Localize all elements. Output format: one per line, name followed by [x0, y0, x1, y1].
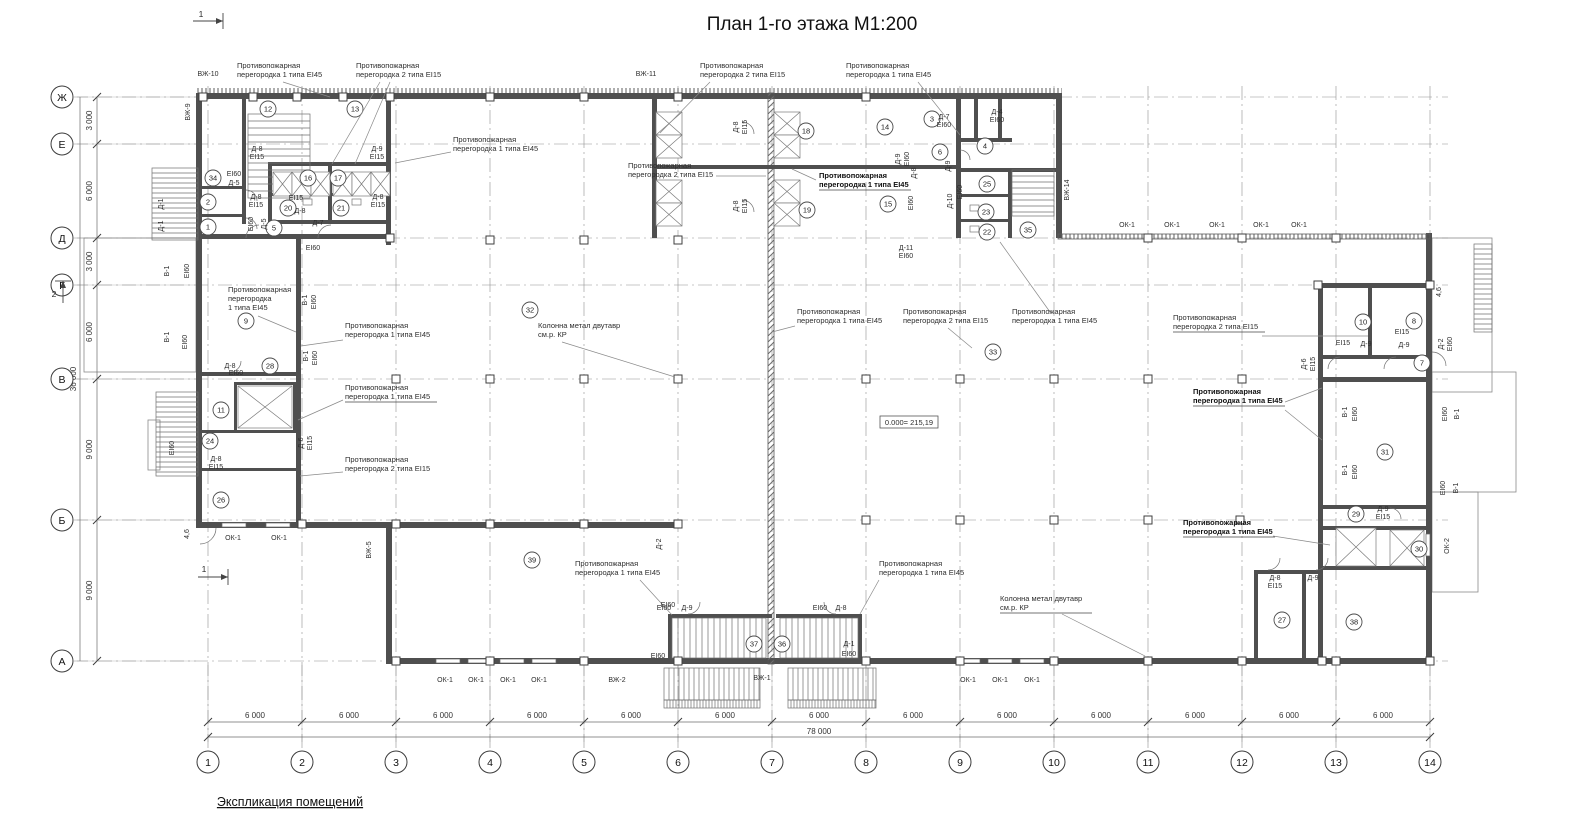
dim-total-text: 78 000: [807, 727, 832, 736]
annotation-text: Противопожарнаяперегородка 1 типа EI45: [1183, 518, 1273, 536]
column-marker: [862, 93, 870, 101]
tag-label: ОК-1: [437, 677, 453, 684]
dim-text: 6 000: [809, 711, 830, 720]
column-marker: [392, 520, 400, 528]
room-number: 20: [284, 204, 292, 213]
tag-label: ОК-1: [1119, 222, 1135, 229]
annotation: Противопожарнаяперегородка 1 типа EI45: [772, 307, 882, 332]
annotation-text: Противопожарнаяперегородка 1 типа EI45: [345, 321, 430, 339]
tag-label: 4,6: [184, 529, 191, 539]
annotation-text: Колонна метал двутаврсм.р. КР: [1000, 594, 1082, 612]
annotation: Противопожарнаяперегородка 2 типа EI15: [300, 455, 430, 476]
room-number: 1: [206, 223, 210, 232]
tag-label: Д-8: [1270, 575, 1281, 582]
axis-label: 12: [1236, 757, 1248, 769]
annotation-text: Противопожарнаяперегородка 2 типа EI15: [1173, 313, 1258, 331]
stair-flight: [788, 700, 876, 708]
tag-label: ОК-1: [1253, 222, 1269, 229]
tag-label: EI60: [182, 335, 189, 350]
column-marker: [956, 375, 964, 383]
tag-label: В-1: [303, 350, 310, 361]
dim-text: 9 000: [85, 439, 94, 460]
tag-label: EI15: [250, 154, 265, 161]
column-marker: [674, 93, 682, 101]
axis-label: В: [58, 374, 65, 386]
annotation: Колонна метал двутаврсм.р. КР: [1000, 594, 1145, 656]
tag-label: Д-8: [733, 200, 740, 211]
tag-label: EI60: [937, 122, 952, 129]
annotation-text: Противопожарнаяперегородка 1 типа EI45: [846, 61, 931, 79]
axis-label: Ж: [57, 92, 67, 104]
annotation-leader: [562, 342, 675, 377]
annotation-leader: [1062, 614, 1145, 656]
stair36-wall: [776, 614, 862, 618]
wc-fixture: [303, 199, 312, 205]
room-number: 3: [930, 115, 934, 124]
dim-text: 6 000: [903, 711, 924, 720]
column-marker: [1238, 657, 1246, 665]
room-number: 36: [778, 640, 786, 649]
room-number: 15: [884, 200, 892, 209]
tag-label: ОК-1: [531, 677, 547, 684]
room-number: 9: [244, 317, 248, 326]
tag-label: Д-8: [733, 121, 740, 132]
annotation: Противопожарнаяперегородка 1 типа EI45: [792, 169, 911, 190]
lift-wall: [234, 382, 296, 385]
annotation-text: Противопожарнаяперегородка 2 типа EI15: [903, 307, 988, 325]
axis-label: Е: [58, 139, 65, 151]
room-number: 19: [803, 206, 811, 215]
annotation-text: Противопожарнаяперегородка1 типа EI45: [228, 285, 291, 312]
column-marker: [580, 375, 588, 383]
tag-label: В-1: [1454, 408, 1461, 419]
dim-text: 6 000: [85, 180, 94, 201]
tag-label: ОК-1: [271, 535, 287, 542]
tag-label: EI60: [184, 264, 191, 279]
tag-label: Д-1: [158, 220, 165, 231]
dim-text: 6 000: [433, 711, 454, 720]
annotation-leader: [258, 316, 296, 332]
tag-label: Д-11: [899, 245, 913, 252]
blk-wall: [960, 194, 1012, 197]
rb-wall-v: [1318, 377, 1432, 382]
tag-label: ВЖ-1: [753, 675, 770, 682]
tag-label: Д-9: [682, 605, 693, 612]
column-marker: [486, 236, 494, 244]
left-rooms-wall: [196, 430, 301, 433]
axis-label: 7: [769, 757, 775, 769]
column-marker: [674, 375, 682, 383]
stair36-wall: [858, 614, 862, 662]
elevation-marker: 0.000= 215,19: [880, 416, 938, 428]
tag-label: Д-8: [251, 194, 262, 201]
column-marker: [486, 520, 494, 528]
dim-text: 6 000: [715, 711, 736, 720]
column-marker: [1332, 234, 1340, 242]
room-number: 18: [802, 127, 810, 136]
tag-label: Д-8: [836, 605, 847, 612]
stair-flight: [664, 668, 760, 700]
tag-label: В-1: [1342, 406, 1349, 417]
lift2-wall: [1322, 566, 1432, 570]
left-rooms-wall: [196, 372, 301, 376]
stair34-wall: [242, 93, 246, 224]
shaft-box: [238, 386, 292, 428]
column-marker: [339, 93, 347, 101]
column-marker: [674, 657, 682, 665]
dim-text: 3 000: [85, 110, 94, 131]
tag-label: В-1: [1453, 482, 1460, 493]
tag-label: В-1: [164, 331, 171, 342]
stair37-wall: [668, 614, 772, 618]
column-marker: [1332, 657, 1340, 665]
axis-label: 3: [393, 757, 399, 769]
annotation: Противопожарнаяперегородка 1 типа EI45: [301, 321, 430, 346]
door-arc: [1268, 558, 1280, 570]
annotation-leader: [772, 326, 795, 332]
annotation: Противопожарнаяперегородка 1 типа EI45: [395, 135, 538, 163]
axis-label: Д: [58, 233, 65, 245]
tag-label: ОК-1: [992, 677, 1008, 684]
room-number: 14: [881, 123, 889, 132]
window-ok2: [1426, 534, 1430, 556]
tag-label: ОК-1: [1209, 222, 1225, 229]
column-marker: [580, 657, 588, 665]
axis-bubbles-layer: 1234567891011121314ЖЕДГВБА: [51, 86, 1441, 773]
tag-label: ОК-1: [960, 677, 976, 684]
dim-text: 6 000: [85, 321, 94, 342]
room-number: 5: [272, 224, 276, 233]
window-ok1: [532, 659, 556, 663]
tag-label: Д-9: [1399, 342, 1410, 349]
annotation-text: Противопожарнаяперегородка 2 типа EI15: [356, 61, 441, 79]
tag-label: Д-5: [261, 218, 268, 229]
stair37-wall: [668, 614, 672, 662]
stair-flight: [664, 700, 760, 708]
annotation: Противопожарнаяперегородка 2 типа EI15: [628, 161, 766, 179]
column-marker: [386, 93, 394, 101]
tag-label: ВЖ-2: [608, 677, 625, 684]
axis-label: 6: [675, 757, 681, 769]
annotation: Колонна метал двутаврсм.р. КР: [538, 321, 675, 377]
annotation: Противопожарнаяперегородка1 типа EI45: [228, 285, 296, 332]
column-marker: [486, 375, 494, 383]
room-number: 7: [1420, 359, 1424, 368]
shaft-box: [656, 112, 682, 158]
tag-label: Д-9: [1308, 575, 1319, 582]
window-ok1: [266, 523, 290, 527]
tag-label: ВЖ-14: [1064, 179, 1071, 200]
section-marker: 1: [193, 9, 223, 29]
wc-wall: [268, 162, 272, 224]
tag-label: ОК-1: [1164, 222, 1180, 229]
dim-text: 6 000: [1185, 711, 1206, 720]
tag-label: В-1: [164, 265, 171, 276]
window-ok1: [436, 659, 460, 663]
annotation-text: Противопожарнаяперегородка 2 типа EI15: [700, 61, 785, 79]
tag-label: ОК-1: [1291, 222, 1307, 229]
column-marker: [1144, 657, 1152, 665]
tag-label: EI15: [1310, 357, 1317, 372]
rb-wall: [1318, 355, 1432, 359]
room-number: 16: [304, 174, 312, 183]
tag-label: Д-9: [945, 160, 952, 171]
tag-label: EI60: [813, 605, 828, 612]
room-number: 4: [983, 142, 987, 151]
tag-label: Д-4: [992, 109, 1003, 116]
annotation-leader: [792, 169, 816, 180]
column-marker: [956, 516, 964, 524]
room-number: 6: [938, 148, 942, 157]
column-marker: [1144, 375, 1152, 383]
blk-wall: [1008, 168, 1012, 238]
annotation: Противопожарнаяперегородка 2 типа EI15: [903, 307, 988, 348]
axis-label: 13: [1330, 757, 1342, 769]
fixtures-layer: [303, 199, 979, 232]
column-marker: [298, 520, 306, 528]
tag-label: EI60: [651, 653, 666, 660]
tag-label: 4,6: [1436, 287, 1443, 297]
annotation-text: Противопожарнаяперегородка 1 типа EI45: [819, 171, 909, 189]
tag-label: Д-9: [1378, 506, 1389, 513]
annotation-text: Противопожарнаяперегородка 2 типа EI15: [628, 161, 713, 179]
central-bearing-wall: [768, 93, 774, 664]
rb-wall-g: [1318, 283, 1432, 288]
tag-label: EI15: [370, 154, 385, 161]
annotation-leader: [300, 472, 343, 476]
column-marker: [1314, 281, 1322, 289]
annotation-leader: [1000, 242, 1050, 312]
tag-label: EI15: [307, 436, 314, 451]
stair-flight: [156, 392, 198, 476]
room-number: 25: [983, 180, 991, 189]
tag-label: EI60: [842, 651, 857, 658]
tag-label: EI60: [227, 171, 242, 178]
door-arc: [960, 150, 970, 160]
room-number: 33: [989, 348, 997, 357]
room-number: 24: [206, 437, 214, 446]
room-number: 27: [1278, 616, 1286, 625]
axis-label: 10: [1048, 757, 1060, 769]
wall-right: [1426, 233, 1432, 664]
window-ok1: [1020, 659, 1044, 663]
windows-layer: [222, 523, 1430, 663]
tag-label: EI60: [661, 602, 676, 609]
column-marker: [1050, 657, 1058, 665]
tag-label: ОК-2: [1444, 538, 1451, 554]
room27-wall: [1302, 570, 1306, 662]
rb-wall-west: [1318, 283, 1323, 664]
annotation: Противопожарнаяперегородка 2 типа EI15: [1173, 313, 1368, 336]
column-marker: [392, 375, 400, 383]
tag-label: Д-8: [295, 208, 306, 215]
shaft-box: [656, 180, 682, 226]
window-ok1: [988, 659, 1012, 663]
shaft-box: [774, 180, 800, 226]
shaft-box: [1336, 528, 1376, 566]
wc-fixture: [970, 226, 979, 232]
tag-label: EI60: [311, 295, 318, 310]
room-number: 31: [1381, 448, 1389, 457]
column-marker: [199, 93, 207, 101]
column-marker: [1144, 516, 1152, 524]
column-marker: [386, 234, 394, 242]
tag-label: ОК-1: [500, 677, 516, 684]
tag-label: Д-1: [844, 641, 855, 648]
tag-label: В-1: [1342, 464, 1349, 475]
tag-label: Д-2: [656, 538, 663, 549]
legend-heading: Экспликация помещений: [217, 795, 363, 809]
tag-label: EI60: [229, 370, 244, 377]
tag-label: Д-8: [911, 167, 918, 178]
room-number: 26: [217, 496, 225, 505]
tag-label: EI15: [289, 195, 304, 202]
dim-text: 6 000: [527, 711, 548, 720]
annotation-leader: [301, 340, 343, 346]
tag-label: Д-6: [298, 437, 305, 448]
column-marker: [956, 657, 964, 665]
tag-label: EI15: [249, 202, 264, 209]
left-rooms-wall: [296, 234, 301, 524]
tag-label: EI15: [371, 202, 386, 209]
tag-label: Д-6: [1301, 358, 1308, 369]
tag-label: ВЖ-11: [636, 71, 657, 78]
axis-label: 5: [581, 757, 587, 769]
column-marker: [249, 93, 257, 101]
axis-label: 14: [1424, 757, 1436, 769]
tag-label: Д-10: [947, 193, 954, 208]
tag-label: EI60: [904, 152, 911, 167]
dim-text: 3 000: [85, 251, 94, 272]
room27-wall: [1254, 570, 1258, 662]
tag-label: Д-8: [252, 146, 263, 153]
room-number: 28: [266, 362, 274, 371]
tag-label: EI60: [169, 441, 176, 456]
annotation-leader: [1285, 410, 1322, 440]
room-number: 23: [982, 208, 990, 217]
right-platform: [1432, 238, 1492, 392]
annotation-text: Противопожарнаяперегородка 1 типа EI45: [879, 559, 964, 577]
door-arc: [1390, 508, 1401, 519]
wall-vzh5: [386, 522, 392, 664]
tag-label: Д-1: [158, 198, 165, 209]
tag-label: Д-7: [313, 220, 324, 227]
column-marker: [580, 520, 588, 528]
tag-label: EI15: [1268, 583, 1283, 590]
corridor-wall-d: [196, 234, 392, 239]
tag-label: Д-8: [225, 363, 236, 370]
tag-label: Д-8: [211, 456, 222, 463]
dim-text: 6 000: [1279, 711, 1300, 720]
tag-label: EI15: [209, 464, 224, 471]
tag-label: ОК-1: [1024, 677, 1040, 684]
tag-label: EI60: [899, 253, 914, 260]
section-marker: 1: [198, 564, 228, 585]
dim-text: 6 000: [1373, 711, 1394, 720]
tag-label: ВЖ-5: [366, 541, 373, 558]
column-marker: [580, 236, 588, 244]
axis-label: 1: [205, 757, 211, 769]
axis-label: 9: [957, 757, 963, 769]
room-number: 10: [1359, 318, 1367, 327]
column-marker: [392, 657, 400, 665]
drawing-page: 6 0006 0006 0006 0006 0006 0006 0006 000…: [0, 0, 1590, 826]
room27-wall: [1254, 570, 1322, 574]
stair-flight: [1474, 244, 1492, 332]
glazing-band-top: [196, 88, 1062, 93]
tag-label: ОК-1: [468, 677, 484, 684]
room-number: 37: [750, 640, 758, 649]
annotation: Противопожарнаяперегородка 1 типа EI45: [298, 383, 437, 420]
room-number: 35: [1024, 226, 1032, 235]
annotation: Противопожарнаяперегородка 1 типа EI45: [1183, 518, 1330, 545]
column-marker: [862, 657, 870, 665]
tag-label: EI60: [248, 217, 255, 232]
room1-wall: [196, 214, 246, 217]
window-ok1: [500, 659, 524, 663]
tag-label: EI15: [1395, 329, 1410, 336]
room-number: 13: [351, 105, 359, 114]
wall-left: [196, 93, 202, 528]
room-number: 17: [334, 174, 342, 183]
annotation: Противопожарнаяперегородка 1 типа EI45: [1000, 242, 1097, 325]
annotation-leader: [860, 580, 879, 614]
room-number: 34: [209, 174, 217, 183]
tag-label: EI60: [908, 196, 915, 211]
room-number: 30: [1415, 545, 1423, 554]
axis-label: А: [58, 656, 65, 668]
tag-label: EI60: [1442, 407, 1449, 422]
tag-label: EI60: [312, 351, 319, 366]
annotation-text: Противопожарнаяперегородка 1 типа EI45: [1012, 307, 1097, 325]
annotation-leader: [395, 152, 451, 163]
right-yard-lower: [1432, 492, 1478, 592]
tag-label: Д-9: [1361, 341, 1372, 348]
tag-label: EI15: [742, 199, 749, 214]
column-marker: [580, 93, 588, 101]
floor-plan-canvas: 6 0006 0006 0006 0006 0006 0006 0006 000…: [0, 0, 1590, 826]
tag-label: ОК-1: [225, 535, 241, 542]
wc-fixture: [970, 205, 979, 211]
section-marker-label: 1: [199, 9, 204, 19]
column-marker: [862, 375, 870, 383]
section-marker-label: 2: [52, 289, 57, 299]
elevation-text: 0.000= 215,19: [885, 418, 933, 427]
column-marker: [1050, 375, 1058, 383]
dim-text: 6 000: [245, 711, 266, 720]
stair-flight: [1012, 170, 1054, 216]
room-number: 38: [1350, 618, 1358, 627]
tag-label: EI15: [1336, 340, 1351, 347]
room-number: 2: [206, 198, 210, 207]
annotation-text: Колонна метал двутаврсм.р. КР: [538, 321, 620, 339]
annotation-text: Противопожарнаяперегородка 1 типа EI45: [237, 61, 322, 79]
tag-label: ВЖ-10: [197, 71, 218, 78]
dim-text: 6 000: [997, 711, 1018, 720]
tag-label: EI60: [1440, 481, 1447, 496]
blk-wall: [974, 93, 978, 142]
room-number: 32: [526, 306, 534, 315]
tag-label: В-1: [302, 294, 309, 305]
lift-wall: [234, 382, 237, 431]
tag-label: ВЖ-9: [185, 103, 192, 120]
axis-label: 11: [1143, 757, 1154, 769]
axis-label: 8: [863, 757, 869, 769]
section-marker-label: 1: [202, 564, 207, 574]
dim-text: 9 000: [85, 580, 94, 601]
wc-fixture: [352, 199, 361, 205]
tag-label: Д-9: [895, 153, 902, 164]
